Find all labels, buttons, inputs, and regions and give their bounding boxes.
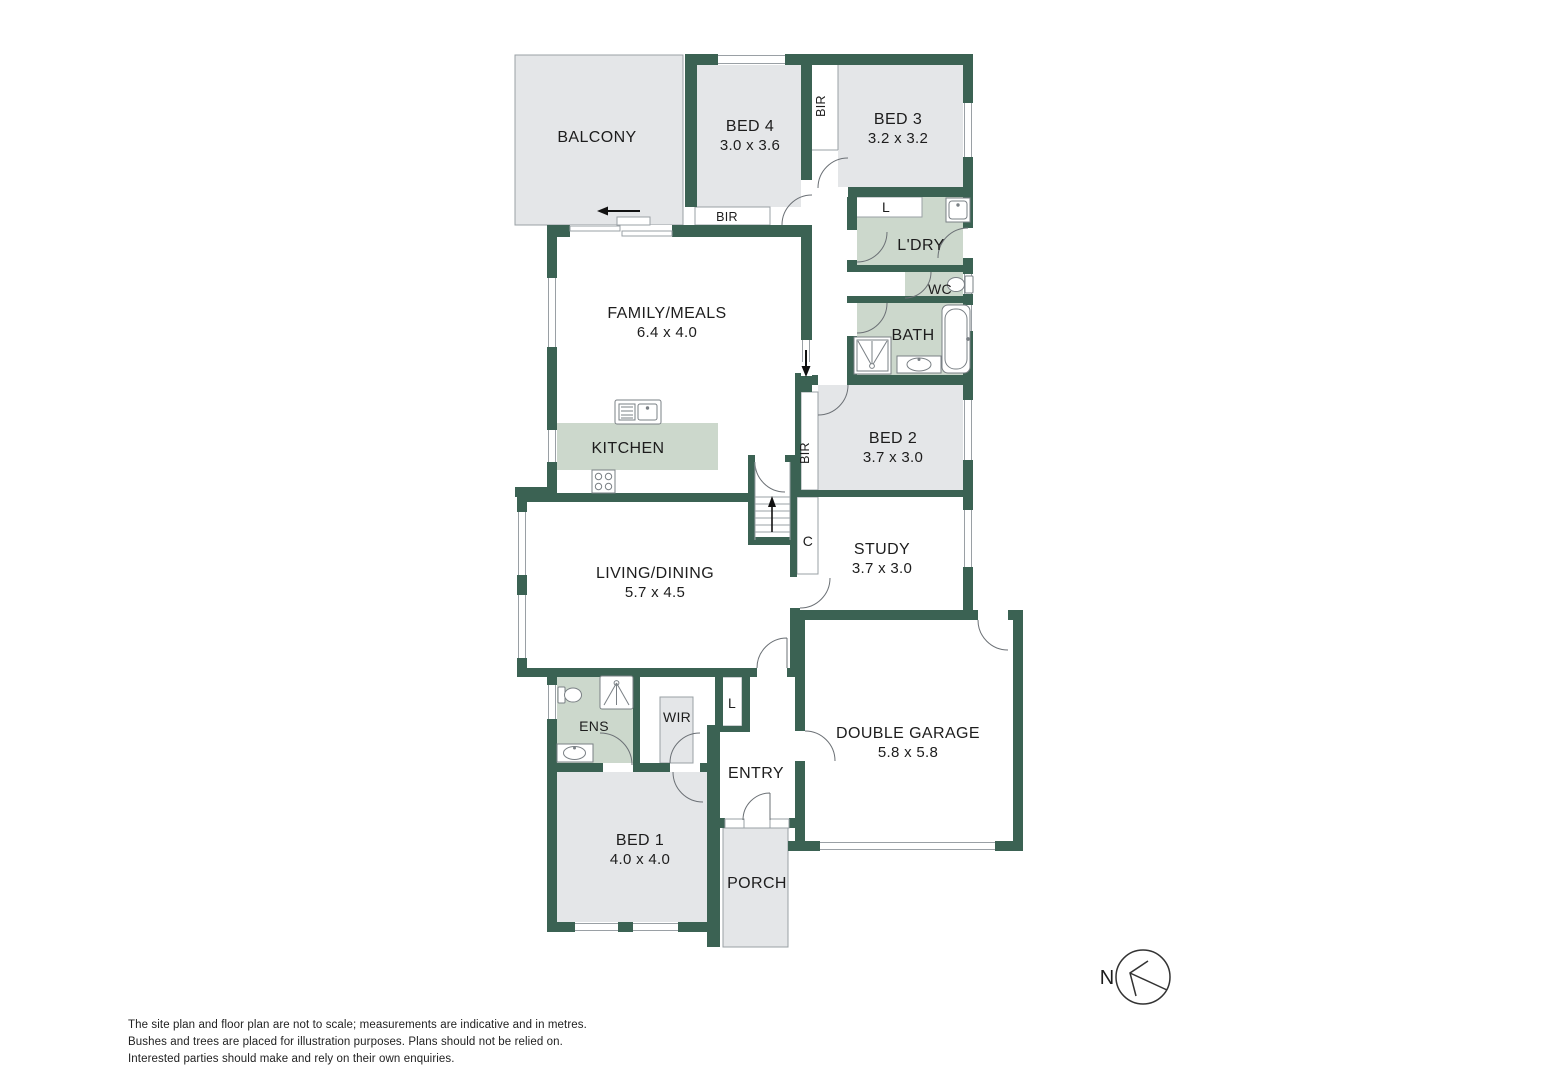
cooktop-icon bbox=[592, 470, 615, 493]
disclaimer-line-2: Bushes and trees are placed for illustra… bbox=[128, 1036, 563, 1048]
wc-label: WC bbox=[928, 281, 952, 297]
bed1-label: BED 1 bbox=[616, 832, 664, 849]
bir-bed4-label: BIR bbox=[716, 210, 738, 224]
bir-bed2-strip bbox=[801, 392, 818, 490]
bathtub-icon bbox=[942, 305, 970, 373]
garage-dims: 5.8 x 5.8 bbox=[878, 744, 938, 761]
laundry-label: L'DRY bbox=[897, 237, 944, 254]
garage-label: DOUBLE GARAGE bbox=[836, 725, 980, 742]
living-dims: 5.7 x 4.5 bbox=[625, 584, 685, 601]
front-door bbox=[743, 793, 770, 820]
kitchen-sink-icon bbox=[615, 400, 661, 424]
disclaimer-text: The site plan and floor plan are not to … bbox=[128, 1019, 587, 1065]
bir-bed3-label: BIR bbox=[814, 95, 828, 117]
disclaimer-line-3: Interested parties should make and rely … bbox=[128, 1053, 455, 1065]
family-label: FAMILY/MEALS bbox=[607, 305, 726, 322]
bed4-dims: 3.0 x 3.6 bbox=[720, 137, 780, 154]
ens-shower-icon bbox=[600, 676, 633, 709]
compass-circle bbox=[1116, 950, 1170, 1004]
bed2-dims: 3.7 x 3.0 bbox=[863, 449, 923, 466]
bed1-dims: 4.0 x 4.0 bbox=[610, 851, 670, 868]
bed3-dims: 3.2 x 3.2 bbox=[868, 130, 928, 147]
ens-basin-icon bbox=[557, 744, 593, 762]
garage-internal-door bbox=[805, 731, 835, 761]
closet-c-label: C bbox=[803, 533, 813, 549]
bed4-label: BED 4 bbox=[726, 118, 774, 135]
ens-label: ENS bbox=[579, 718, 609, 734]
floor-plan-canvas: BALCONY BED 4 3.0 x 3.6 BIR BED 3 3.2 x … bbox=[0, 0, 1542, 1080]
bed3-label: BED 3 bbox=[874, 111, 922, 128]
bath-basin-icon bbox=[897, 356, 941, 373]
bir-bed2-label: BIR bbox=[798, 442, 812, 464]
kitchen-label: KITCHEN bbox=[591, 440, 664, 457]
stairs bbox=[755, 462, 790, 540]
entry-label: ENTRY bbox=[728, 765, 784, 782]
bed4-area bbox=[697, 65, 801, 207]
living-entry-door bbox=[757, 638, 787, 668]
wir-robe bbox=[660, 697, 693, 763]
stair-hall-door bbox=[755, 462, 785, 492]
linen-lower-label: L bbox=[728, 695, 736, 711]
ens-toilet-icon bbox=[558, 687, 582, 703]
laundry-trough-icon bbox=[946, 198, 970, 222]
porch-label: PORCH bbox=[727, 875, 787, 892]
family-dims: 6.4 x 4.0 bbox=[637, 324, 697, 341]
north-arrow-icon bbox=[1130, 961, 1167, 996]
living-label: LIVING/DINING bbox=[596, 565, 714, 582]
north-label: N bbox=[1100, 967, 1114, 989]
balcony-label: BALCONY bbox=[557, 129, 636, 146]
garage-door bbox=[820, 842, 995, 850]
study-dims: 3.7 x 3.0 bbox=[852, 560, 912, 577]
wir-label: WIR bbox=[663, 709, 691, 725]
linen-upper-label: L bbox=[882, 199, 890, 215]
north-compass: N bbox=[1100, 950, 1170, 1004]
bath-shower-icon bbox=[854, 337, 891, 374]
study-hall-door bbox=[800, 578, 830, 608]
bed2-label: BED 2 bbox=[869, 430, 917, 447]
disclaimer-line-1: The site plan and floor plan are not to … bbox=[128, 1019, 587, 1031]
garage-rear-door bbox=[978, 620, 1008, 650]
bath-label: BATH bbox=[891, 327, 934, 344]
floor-plan-page: BALCONY BED 4 3.0 x 3.6 BIR BED 3 3.2 x … bbox=[0, 0, 1542, 1080]
study-label: STUDY bbox=[854, 541, 910, 558]
